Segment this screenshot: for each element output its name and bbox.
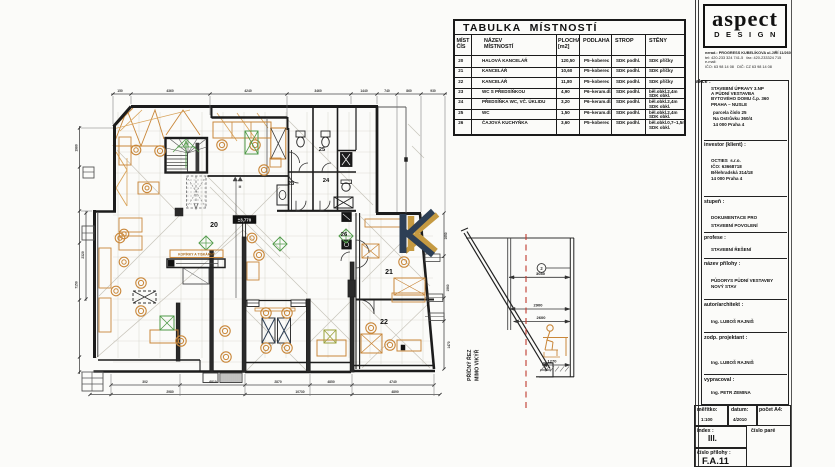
svg-text:26: 26 — [341, 232, 348, 238]
svg-text:M: M — [239, 185, 242, 189]
svg-text:20: 20 — [210, 222, 218, 229]
svg-text:1470: 1470 — [447, 341, 451, 348]
svg-text:1960: 1960 — [446, 284, 450, 291]
svg-text:7150: 7150 — [75, 281, 79, 289]
svg-text:2980: 2980 — [166, 390, 174, 394]
svg-text:1980: 1980 — [75, 144, 79, 152]
svg-text:6810: 6810 — [209, 380, 217, 384]
svg-text:2900: 2900 — [534, 303, 544, 308]
svg-text:302: 302 — [142, 380, 148, 384]
svg-text:22: 22 — [380, 319, 388, 326]
svg-text:25: 25 — [319, 147, 326, 153]
svg-text:930: 930 — [430, 89, 436, 93]
svg-text:4890: 4890 — [391, 390, 399, 394]
svg-text:4360: 4360 — [166, 89, 174, 93]
svg-text:3460: 3460 — [314, 89, 322, 93]
svg-text:MIMO VIKÝŘ: MIMO VIKÝŘ — [473, 349, 481, 381]
svg-text:2320: 2320 — [81, 251, 85, 259]
svg-text:2600: 2600 — [537, 315, 547, 320]
svg-text:2870: 2870 — [274, 380, 282, 384]
svg-text:21: 21 — [385, 269, 393, 276]
svg-text:1270: 1270 — [548, 359, 558, 364]
svg-text:±3,770: ±3,770 — [238, 218, 252, 223]
svg-text:1440: 1440 — [360, 89, 368, 93]
svg-text:150: 150 — [117, 89, 123, 93]
svg-text:KOPÍRKY A TISKÁRNY: KOPÍRKY A TISKÁRNY — [178, 252, 216, 257]
svg-text:4850: 4850 — [327, 380, 335, 384]
svg-text:1650: 1650 — [444, 232, 448, 239]
svg-text:24: 24 — [323, 178, 330, 184]
svg-text:4240: 4240 — [244, 89, 252, 93]
svg-text:23: 23 — [288, 181, 295, 187]
svg-text:860: 860 — [406, 89, 412, 93]
svg-text:PŘÍČNÝ ŘEZ: PŘÍČNÝ ŘEZ — [465, 349, 473, 381]
svg-text:4740: 4740 — [389, 380, 397, 384]
svg-text:10730: 10730 — [295, 390, 304, 394]
svg-text:740: 740 — [384, 89, 390, 93]
